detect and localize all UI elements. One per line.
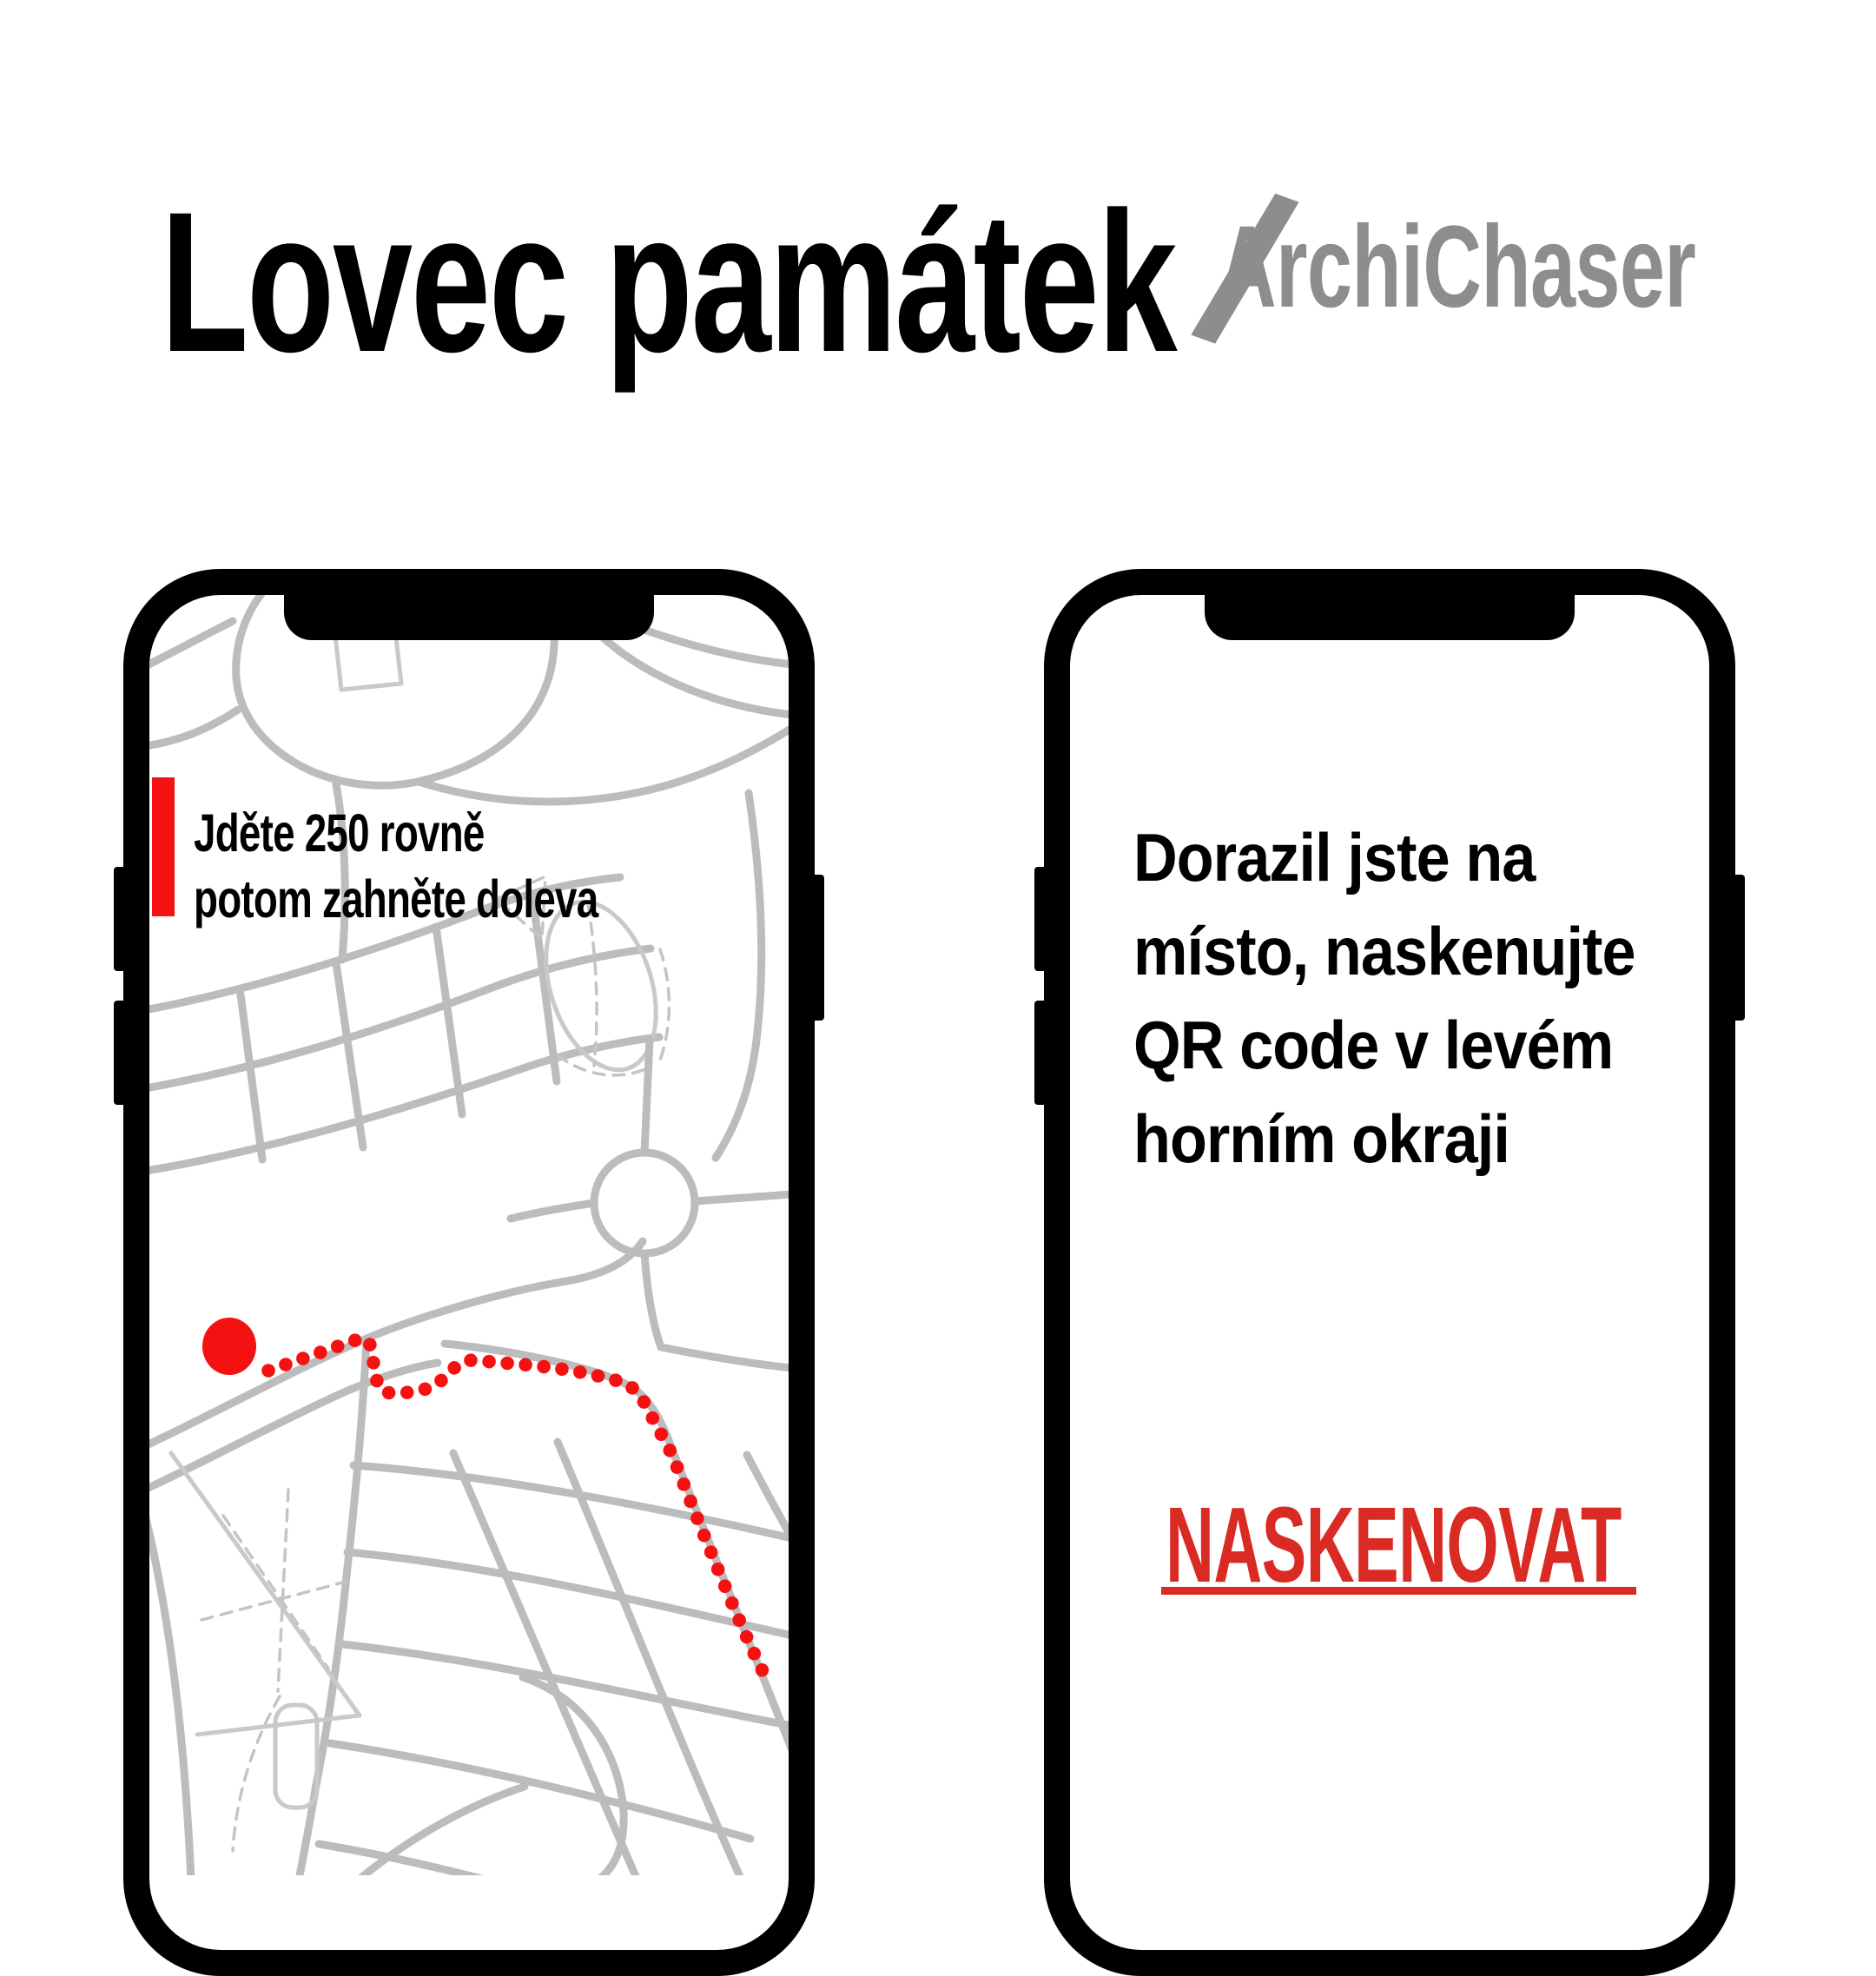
- message-line-1: Dorazil jste na: [1133, 810, 1635, 904]
- left-phone: Jděte 250 rovně potom zahněte doleva: [123, 569, 815, 1976]
- volume-up-button: [114, 867, 126, 971]
- right-phone-screen: Dorazil jste na místo, naskenujte QR cod…: [1070, 595, 1709, 1950]
- navigation-instruction: Jděte 250 rovně potom zahněte doleva: [194, 800, 598, 932]
- left-phone-notch: [284, 569, 654, 640]
- volume-down-button: [114, 1001, 126, 1105]
- message-line-2: místo, naskenujte: [1133, 904, 1635, 998]
- left-phone-screen: Jděte 250 rovně potom zahněte doleva: [149, 595, 789, 1950]
- navigation-map: [149, 595, 789, 1875]
- page-subtitle: ArchiChaser: [1218, 209, 1695, 326]
- scan-link[interactable]: NASKENOVAT: [1166, 1492, 1622, 1599]
- arrival-message: Dorazil jste na místo, naskenujte QR cod…: [1133, 810, 1635, 1186]
- map-roads: [149, 595, 789, 1875]
- volume-down-button: [1034, 1001, 1047, 1105]
- right-phone: Dorazil jste na místo, naskenujte QR cod…: [1044, 569, 1735, 1976]
- message-line-3: QR code v levém: [1133, 998, 1635, 1092]
- instruction-accent-bar: [152, 777, 175, 916]
- instruction-line-1: Jděte 250 rovně: [194, 800, 598, 866]
- volume-up-button: [1034, 867, 1047, 971]
- power-button: [1733, 875, 1745, 1021]
- page-title: Lovec památek: [161, 182, 1175, 382]
- instruction-line-2: potom zahněte doleva: [194, 866, 598, 932]
- scan-link-underline: [1161, 1587, 1636, 1595]
- message-line-4: horním okraji: [1133, 1092, 1635, 1186]
- right-phone-notch: [1205, 569, 1575, 640]
- current-location-dot: [202, 1318, 256, 1375]
- power-button: [812, 875, 824, 1021]
